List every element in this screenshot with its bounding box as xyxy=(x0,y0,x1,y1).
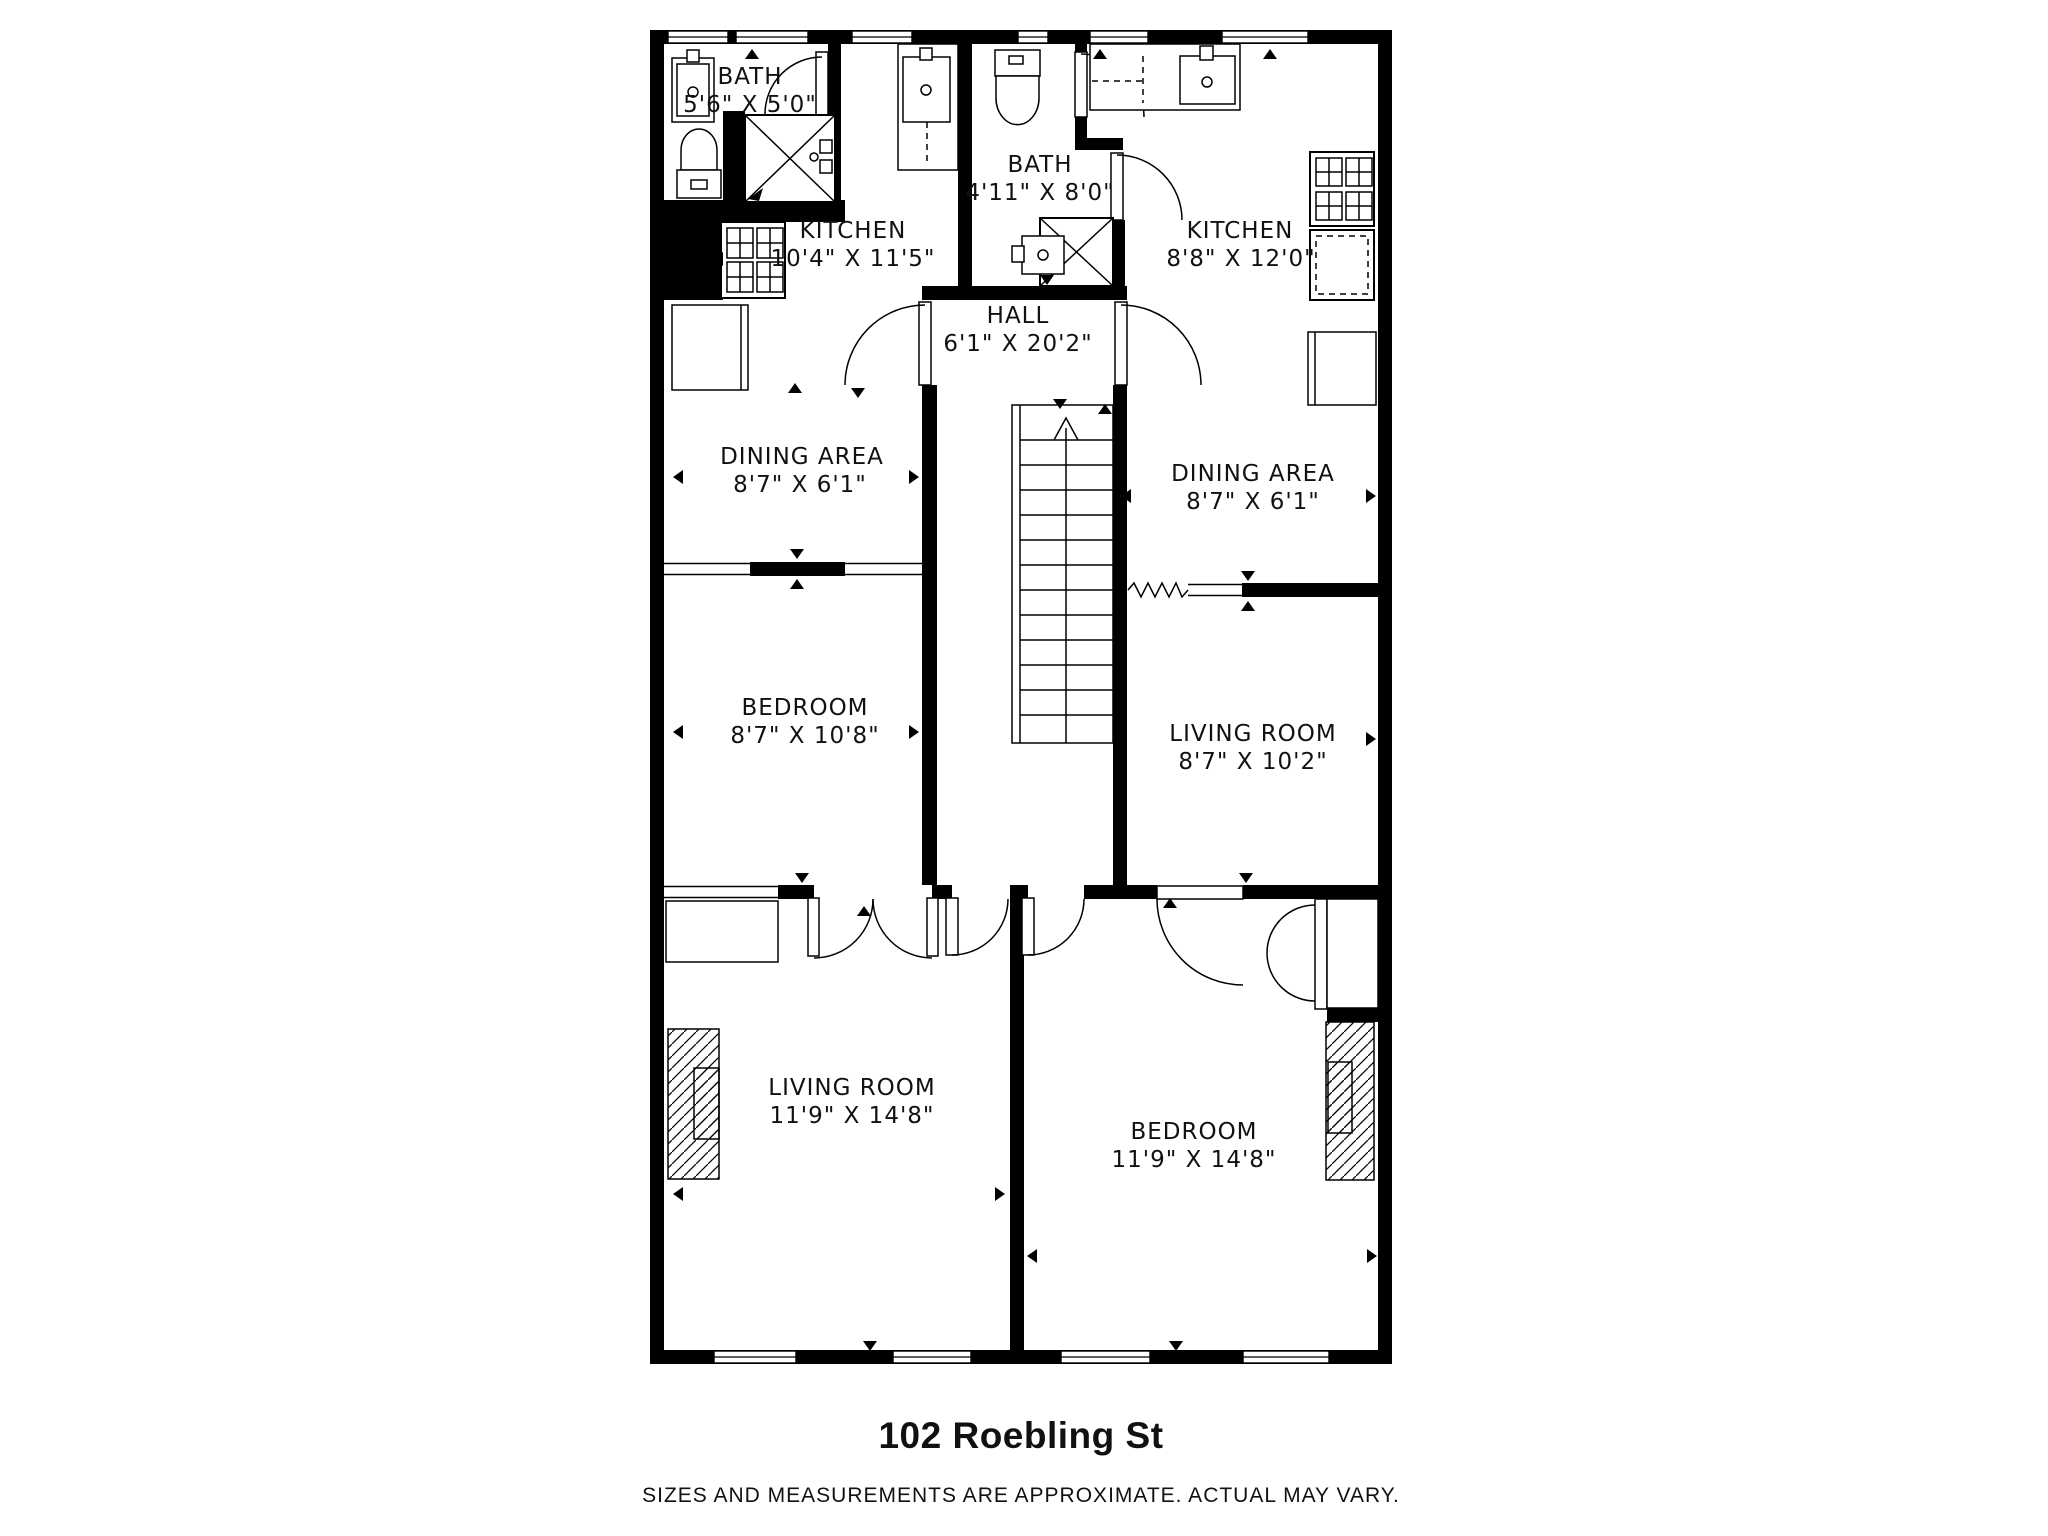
sink-center-bath xyxy=(1012,236,1064,274)
room-label-hall-name: HALL xyxy=(987,303,1050,329)
window xyxy=(736,31,808,43)
window xyxy=(1061,1351,1150,1363)
room-label-dining-left-dims: 8'7" X 6'1" xyxy=(733,472,867,498)
counter-left-fridge xyxy=(672,305,748,390)
room-label-bedroom-upper-name: BEDROOM xyxy=(741,695,868,721)
marker-arrow-icon xyxy=(1169,1341,1183,1351)
opening-dining-left-a xyxy=(664,562,750,576)
fridge-right xyxy=(1310,230,1374,300)
marker-arrow-icon xyxy=(909,725,919,739)
marker-arrow-icon xyxy=(790,579,804,589)
door-center-bath xyxy=(1111,153,1182,220)
closet-lower-left xyxy=(666,901,778,962)
window xyxy=(852,31,912,43)
room-label-kitchen-right-dims: 8'8" X 12'0" xyxy=(1166,246,1315,272)
radiator-zigzag xyxy=(1128,583,1188,597)
window xyxy=(893,1351,971,1363)
marker-arrow-icon xyxy=(1366,489,1376,503)
room-label-dining-left-name: DINING AREA xyxy=(720,444,884,470)
room-label-living-lower-name: LIVING ROOM xyxy=(768,1075,936,1101)
marker-arrow-icon xyxy=(1366,732,1376,746)
room-label-bath-center-name: BATH xyxy=(1007,152,1072,178)
marker-arrow-icon xyxy=(1263,49,1277,59)
page-title: 102 Roebling St xyxy=(878,1415,1163,1456)
window xyxy=(1090,31,1148,43)
room-label-living-lower-dims: 11'9" X 14'8" xyxy=(770,1103,935,1129)
door-hall-to-right-unit xyxy=(1115,302,1201,385)
window xyxy=(668,31,728,43)
shower-upper-left xyxy=(745,115,835,202)
marker-arrow-icon xyxy=(851,388,865,398)
marker-arrow-icon xyxy=(788,383,802,393)
room-label-living-upper-dims: 8'7" X 10'2" xyxy=(1178,749,1327,775)
toilet-center-bath xyxy=(995,50,1040,125)
marker-arrow-icon xyxy=(1367,1249,1377,1263)
window xyxy=(1222,31,1308,43)
marker-arrow-icon xyxy=(863,1341,877,1351)
room-label-dining-right-name: DINING AREA xyxy=(1171,461,1335,487)
room-label-bath-upper-left-dims: 5'6" X 5'0" xyxy=(683,92,817,118)
marker-arrow-icon xyxy=(909,470,919,484)
marker-arrow-icon xyxy=(1239,873,1253,883)
door-hall-to-lower-bedroom xyxy=(1022,898,1084,955)
door-french-closet xyxy=(1267,899,1327,1009)
marker-arrow-icon xyxy=(673,470,683,484)
marker-arrow-icon xyxy=(673,1187,683,1201)
room-label-bath-upper-left-name: BATH xyxy=(717,64,782,90)
floor-plan-svg: BATH 5'6" X 5'0" KITCHEN 10'4" X 11'5" B… xyxy=(0,0,2048,1536)
counter-right-lower xyxy=(1308,332,1376,405)
room-label-bath-center-dims: 4'11" X 8'0" xyxy=(965,180,1114,206)
room-label-bedroom-upper-dims: 8'7" X 10'8" xyxy=(730,723,879,749)
staircase xyxy=(1012,405,1113,743)
counter-sink-left-kitchen xyxy=(898,44,958,170)
stove-right xyxy=(1310,152,1374,226)
window xyxy=(714,1351,796,1363)
door-double-bedroom-to-living xyxy=(808,898,938,958)
marker-arrow-icon xyxy=(673,725,683,739)
counter-sink-right-kitchen xyxy=(1090,44,1240,110)
room-label-hall-dims: 6'1" X 20'2" xyxy=(943,331,1092,357)
opening-division-left xyxy=(664,885,778,899)
door-hall-to-left-kitchen xyxy=(845,302,931,385)
room-label-bedroom-lower-dims: 11'9" X 14'8" xyxy=(1112,1147,1277,1173)
marker-arrow-icon xyxy=(857,906,871,916)
opening-dining-left-b xyxy=(845,562,922,576)
marker-arrow-icon xyxy=(995,1187,1005,1201)
window xyxy=(1243,1351,1329,1363)
room-label-kitchen-right-name: KITCHEN xyxy=(1187,218,1294,244)
room-label-kitchen-left-dims: 10'4" X 11'5" xyxy=(771,246,936,272)
disclaimer-text: SIZES AND MEASUREMENTS ARE APPROXIMATE. … xyxy=(642,1484,1400,1507)
fireplace-lower-right xyxy=(1326,1022,1374,1180)
marker-arrow-icon xyxy=(790,549,804,559)
toilet-upper-left-bath xyxy=(677,129,721,198)
marker-arrow-icon xyxy=(745,49,759,59)
opening-dining-right xyxy=(1188,583,1242,597)
room-label-living-upper-name: LIVING ROOM xyxy=(1169,721,1337,747)
closet-lower-right xyxy=(1327,899,1378,1008)
marker-arrow-icon xyxy=(1241,601,1255,611)
floor-plan-canvas: BATH 5'6" X 5'0" KITCHEN 10'4" X 11'5" B… xyxy=(0,0,2048,1536)
room-label-bedroom-lower-name: BEDROOM xyxy=(1130,1119,1257,1145)
room-label-kitchen-left-name: KITCHEN xyxy=(800,218,907,244)
fireplace-lower-left xyxy=(668,1029,719,1179)
window xyxy=(1018,31,1048,43)
room-label-dining-right-dims: 8'7" X 6'1" xyxy=(1186,489,1320,515)
marker-arrow-icon xyxy=(1241,571,1255,581)
marker-arrow-icon xyxy=(795,873,809,883)
marker-arrow-icon xyxy=(1027,1249,1037,1263)
door-hall-to-lower-living xyxy=(946,898,1008,955)
